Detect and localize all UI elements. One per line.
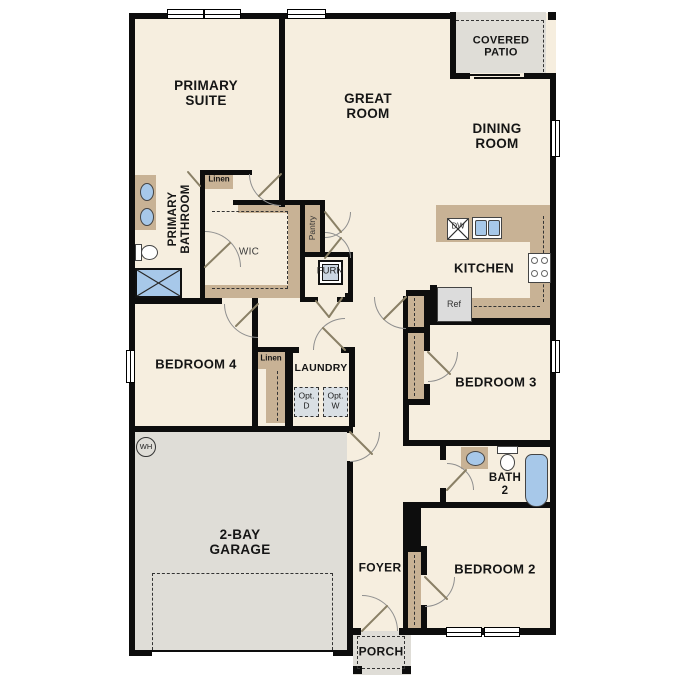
window (551, 120, 560, 157)
toilet-bowl (500, 454, 515, 471)
wall (421, 552, 427, 575)
bathroom-sink (140, 208, 154, 226)
wall (285, 347, 299, 353)
wall (349, 353, 355, 427)
room-label-laundry: LAUNDRY (294, 363, 347, 375)
burner (541, 270, 548, 277)
toilet-tank (497, 446, 518, 454)
shower (135, 268, 182, 298)
wic-shelf-right (288, 205, 300, 290)
wall (403, 552, 408, 635)
kitchen-cabinet-dashed (474, 306, 540, 307)
label-pantry: Pantry (308, 216, 318, 241)
bathtub (525, 454, 548, 507)
wall (353, 628, 361, 635)
burner (531, 257, 538, 264)
label-furnace: FURN (317, 267, 343, 278)
floor-plan: PRIMARY SUITE GREAT ROOM DINING ROOM COV… (0, 0, 687, 687)
toilet-bowl (141, 245, 158, 260)
wall (403, 405, 409, 440)
room-label-bath2: BATH 2 (489, 472, 521, 498)
room-label-primary-suite: PRIMARY SUITE (174, 78, 238, 108)
linen2-shelf (266, 369, 285, 423)
wall (408, 327, 424, 333)
sliding-door (474, 77, 526, 79)
burner (531, 270, 538, 277)
room-label-kitchen: KITCHEN (454, 262, 514, 277)
hall-closet (408, 296, 424, 327)
room-label-great-room: GREAT ROOM (344, 91, 392, 121)
wall (450, 73, 470, 79)
room-label-wic: WIC (239, 246, 259, 257)
window (551, 340, 560, 373)
wall (333, 650, 353, 656)
closet-rod-dashed (414, 555, 415, 625)
kitchen-counter-bottom (472, 298, 553, 318)
wall (524, 73, 556, 79)
wall (424, 333, 430, 351)
wall (345, 293, 353, 300)
label-linen2: Linen (260, 355, 281, 364)
closet-rod-dashed (414, 298, 415, 326)
wall (300, 297, 318, 302)
window (287, 9, 326, 19)
wall (285, 353, 293, 427)
window (167, 9, 204, 19)
wall (129, 650, 152, 656)
room-label-porch: PORCH (359, 645, 404, 658)
sliding-door (468, 74, 520, 76)
window (484, 627, 520, 637)
window (204, 9, 241, 19)
window (126, 350, 135, 383)
room-label-bedroom2: BEDROOM 2 (454, 563, 535, 578)
label-dishwasher: DW (451, 223, 464, 232)
wall (518, 440, 556, 447)
room-label-primary-bathroom: PRIMARY BATHROOM (167, 184, 193, 253)
bathroom-sink (140, 183, 154, 201)
garage-door-line (152, 650, 333, 652)
window (446, 627, 482, 637)
wall (129, 298, 222, 304)
burner (541, 257, 548, 264)
label-linen1: Linen (208, 176, 229, 185)
bedroom3-closet (408, 333, 424, 399)
wall (548, 12, 556, 20)
closet-rod-dashed (277, 371, 278, 421)
closet-rod-dashed (414, 336, 415, 396)
wall (421, 605, 427, 628)
wall (347, 461, 353, 656)
sink-basin (475, 220, 487, 236)
bath2-sink (466, 451, 485, 466)
wall (129, 426, 353, 432)
label-opt-dryer: Opt. D (298, 391, 314, 410)
label-water-heater: WH (140, 443, 153, 451)
sink-basin (488, 220, 500, 236)
wall (440, 446, 446, 460)
room-label-foyer: FOYER (359, 561, 402, 574)
garage-door-dashed (152, 573, 333, 650)
room-label-bedroom4: BEDROOM 4 (155, 358, 236, 373)
label-refrigerator: Ref (447, 299, 461, 309)
room-label-dining-room: DINING ROOM (472, 121, 521, 151)
room-label-covered-patio: COVERED PATIO (473, 35, 530, 60)
room-label-bedroom3: BEDROOM 3 (455, 376, 536, 391)
room-label-garage: 2-BAY GARAGE (209, 527, 270, 557)
label-opt-washer: Opt. W (327, 391, 343, 410)
wall (300, 200, 305, 302)
wall (129, 13, 135, 656)
